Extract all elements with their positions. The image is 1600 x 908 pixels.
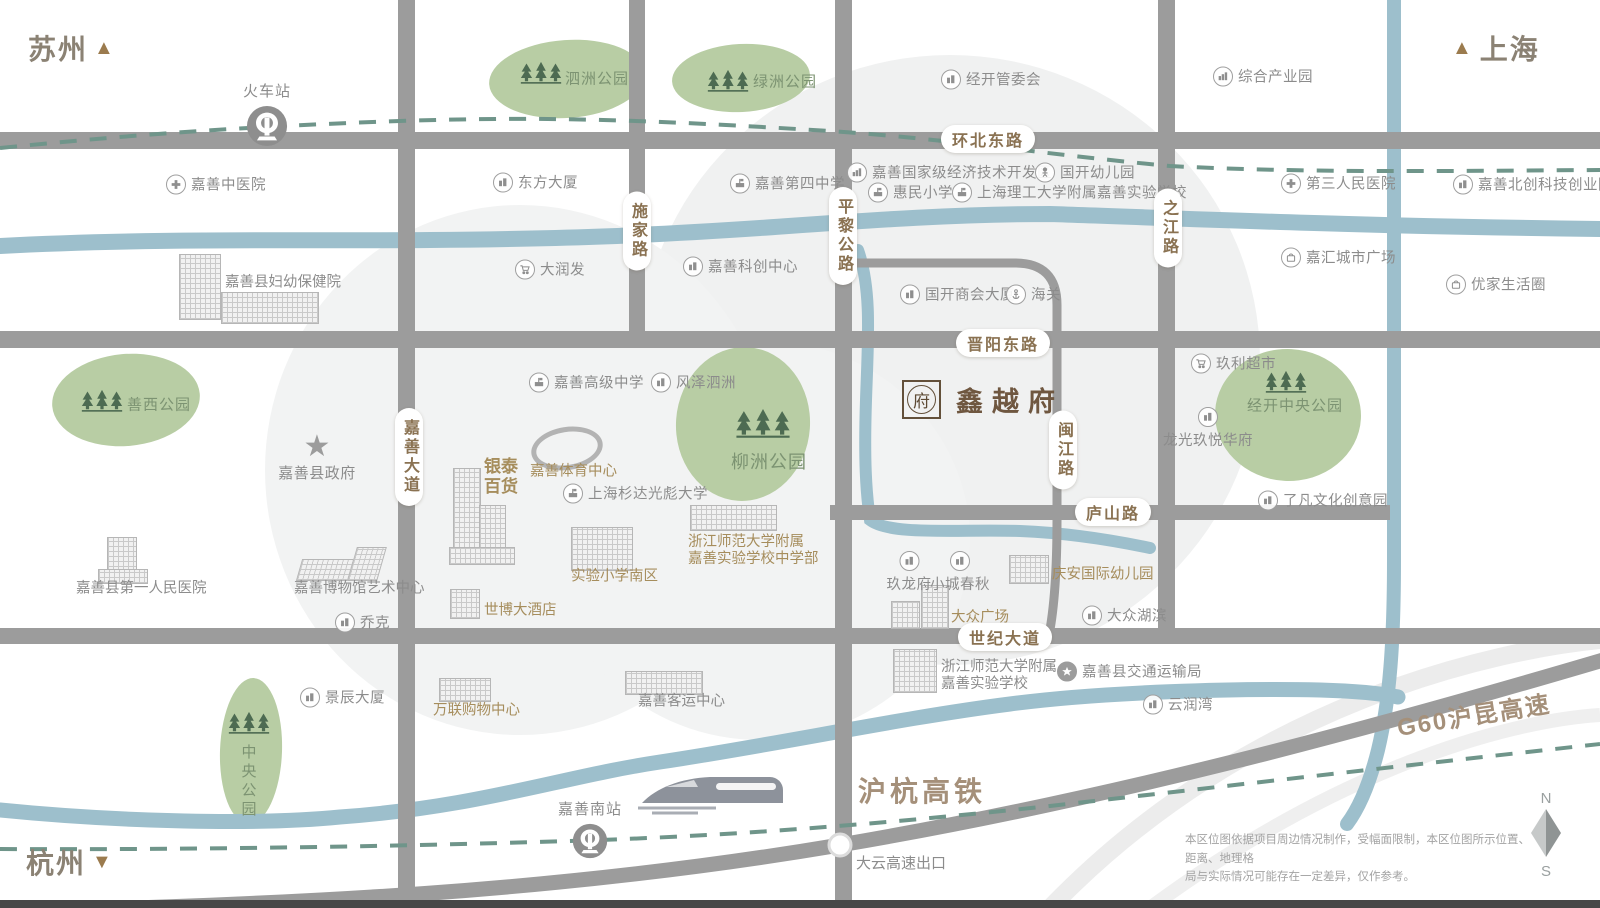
- poi-label: 了凡文化创意园: [1283, 490, 1388, 511]
- hospital-icon: [166, 174, 186, 194]
- map-poi: 嘉善科创中心: [683, 256, 798, 277]
- station-jiashan-south: 嘉善南站: [558, 798, 622, 864]
- road-label-pill: 之江路: [1154, 189, 1182, 268]
- trees-icon: [706, 70, 750, 94]
- building-sketch: [450, 589, 480, 619]
- poi-label: 上海杉达光彪大学: [588, 483, 708, 504]
- school-icon: [952, 182, 972, 202]
- map-poi: 大众湖滨: [1082, 605, 1167, 626]
- railway-emblem-icon: [246, 105, 288, 152]
- compass-north-label: N: [1541, 790, 1552, 807]
- park-label: 绿洲公园: [753, 71, 817, 92]
- map-poi: 嘉善县交通运输局: [1057, 661, 1202, 682]
- road-label-pill: 庐山路: [1075, 498, 1151, 526]
- south-triangle-icon: ▼: [92, 851, 114, 874]
- landmark-label: 世博大酒店: [484, 602, 557, 619]
- building-sketch: [690, 505, 777, 531]
- poi-label: 第三人民医院: [1306, 173, 1396, 194]
- map-poi: 优家生活圈: [1446, 274, 1546, 295]
- trees-icon: [80, 390, 124, 414]
- city-name: 苏州: [28, 28, 88, 68]
- landmark-label: 浙江师范大学附属嘉善实验学校: [941, 659, 1057, 693]
- building-sketch: [296, 559, 354, 581]
- map-poi: 大润发: [515, 259, 585, 280]
- seal-character: 府: [907, 385, 936, 414]
- building-icon: [899, 551, 919, 571]
- building-sketch: [625, 671, 703, 695]
- project-name: 鑫越府: [956, 380, 1064, 419]
- railway-emblem-icon: [572, 823, 608, 864]
- poi-label: 国开商会大厦: [925, 284, 1015, 305]
- station-huochezhan: 火车站: [243, 80, 291, 152]
- poi-label: 优家生活圈: [1471, 274, 1546, 295]
- building-icon: [335, 612, 355, 632]
- project-logo: 府 鑫越府: [902, 380, 1064, 419]
- map-poi: 东方大厦: [493, 172, 578, 193]
- station-label: 火车站: [243, 80, 291, 101]
- highway-exit-label: 大云高速出口: [856, 852, 946, 873]
- building-icon: [1258, 490, 1278, 510]
- park-label: 经开中央公园: [1247, 395, 1343, 416]
- road-label-pill: 世纪大道: [958, 623, 1052, 651]
- map-poi: 嘉汇城市广场: [1281, 247, 1396, 268]
- star-icon: [1057, 661, 1077, 681]
- school-icon: [529, 372, 549, 392]
- map-poi: 了凡文化创意园: [1258, 490, 1388, 511]
- poi-label: 嘉善第四中学: [755, 173, 845, 194]
- trees-icon: [519, 62, 563, 86]
- mall-icon: [1281, 247, 1301, 267]
- road-label-pill: 平黎公路: [829, 187, 857, 285]
- landmark-label: 实验小学南区: [571, 568, 658, 585]
- building-icon: [1082, 605, 1102, 625]
- train-illustration: [636, 763, 788, 822]
- map-poi: 云润湾: [1143, 694, 1213, 715]
- building-icon: [493, 172, 513, 192]
- poi-label: 嘉善中医院: [191, 174, 266, 195]
- cart-icon: [515, 259, 535, 279]
- building-sketch: [893, 649, 937, 693]
- road-label-pill: 闽江路: [1049, 411, 1077, 490]
- building-sketch: [571, 527, 633, 571]
- poi-label: 惠民小学: [893, 182, 953, 203]
- poi-government: ★ 嘉善县政府: [278, 432, 356, 483]
- park-label: 善西公园: [127, 394, 191, 415]
- building-icon: [900, 284, 920, 304]
- road-label-pill: 嘉善大道: [395, 408, 423, 506]
- building-sketch: [449, 547, 515, 565]
- hospital-icon: [1281, 173, 1301, 193]
- poi-label: 嘉汇城市广场: [1306, 247, 1396, 268]
- map-poi: 综合产业园: [1213, 66, 1313, 87]
- map-poi: 嘉善中医院: [166, 174, 266, 195]
- compass-diamond-icon: [1531, 809, 1561, 861]
- city-label-hangzhou: 杭州 ▼: [26, 842, 114, 882]
- landmark-label: 嘉善客运中心: [638, 693, 725, 710]
- map-poi: 嘉善北创科技创业园: [1453, 174, 1600, 195]
- landmark-label: 万联购物中心: [433, 702, 520, 719]
- map-poi: 上海杉达光彪大学: [563, 483, 708, 504]
- landmark-label: 嘉善博物馆艺术中心: [294, 580, 425, 597]
- poi-label: 嘉善北创科技创业园: [1478, 174, 1600, 195]
- landmark-label: 浙江师范大学附属嘉善实验学校中学部: [688, 534, 819, 568]
- building-sketch: [221, 292, 319, 324]
- city-name: 杭州: [26, 842, 86, 882]
- map-poi: 小城春秋: [930, 551, 990, 594]
- poi-label: 国开幼儿园: [1060, 162, 1135, 183]
- city-label-shanghai: ▲ 上海: [1452, 28, 1540, 68]
- poi-label: 乔克: [360, 612, 390, 633]
- poi-label: 嘉善县政府: [278, 462, 356, 483]
- poi-label: 龙光玖悦华府: [1163, 429, 1253, 450]
- building-icon: [683, 256, 703, 276]
- map-poi: 经开管委会: [941, 69, 1041, 90]
- park-label: 中央公园: [238, 744, 259, 820]
- cart-icon: [1191, 353, 1211, 373]
- map-poi: 风泽泗洲: [651, 372, 736, 393]
- map-poi: 龙光玖悦华府: [1163, 407, 1253, 450]
- building-icon: [1198, 407, 1218, 427]
- park-label: 泗洲公园: [565, 68, 629, 89]
- disclaimer-text: 本区位图依据项目周边情况制作，受幅面限制，本区位图所示位置、距离、地理格 局与实…: [1185, 831, 1530, 887]
- trees-icon: [734, 409, 792, 441]
- city-name: 上海: [1480, 28, 1540, 68]
- poi-label: 玖利超市: [1216, 353, 1276, 374]
- building-sketch: [439, 678, 491, 702]
- high-speed-rail-label: 沪杭高铁: [858, 770, 986, 810]
- highway-exit-node: [829, 834, 851, 856]
- poi-label: 嘉善国家级经济技术开发区: [872, 162, 1052, 183]
- poi-label: 海关: [1031, 284, 1061, 305]
- poi-label: 嘉善县交通运输局: [1082, 661, 1202, 682]
- map-poi: 景辰大厦: [300, 687, 385, 708]
- park-label: 柳洲公园: [731, 448, 807, 474]
- trees-icon: [1264, 371, 1308, 395]
- poi-label: 大众湖滨: [1107, 605, 1167, 626]
- mall-icon: [1446, 274, 1466, 294]
- school-icon: [868, 182, 888, 202]
- building-sketch: [891, 601, 920, 629]
- factory-icon: [847, 162, 867, 182]
- building-sketch: [1009, 555, 1049, 584]
- poi-label: 风泽泗洲: [676, 372, 736, 393]
- map-poi: 第三人民医院: [1281, 173, 1396, 194]
- map-poi: 嘉善高级中学: [529, 372, 644, 393]
- north-triangle-icon: ▲: [1452, 37, 1474, 60]
- disclaimer-line: 局与实际情况可能存在一定差异，仅作参考。: [1185, 868, 1530, 887]
- anchor-icon: [1006, 284, 1026, 304]
- map-poi: 国开商会大厦: [900, 284, 1015, 305]
- map-poi: 嘉善第四中学: [730, 173, 845, 194]
- building-icon: [1143, 694, 1163, 714]
- school-icon: [730, 173, 750, 193]
- poi-label: 嘉善高级中学: [554, 372, 644, 393]
- station-label: 嘉善南站: [558, 798, 622, 819]
- poi-label: 东方大厦: [518, 172, 578, 193]
- compass: N S: [1528, 790, 1564, 880]
- poi-label: 玖龙府: [887, 573, 932, 594]
- map-poi: 玖龙府: [887, 551, 932, 594]
- building-icon: [651, 372, 671, 392]
- road-label-pill: 晋阳东路: [956, 329, 1050, 357]
- building-icon: [941, 69, 961, 89]
- poi-label: 综合产业园: [1238, 66, 1313, 87]
- bottom-bar: [0, 900, 1600, 908]
- building-icon: [1453, 174, 1473, 194]
- building-icon: [950, 551, 970, 571]
- factory-icon: [1213, 66, 1233, 86]
- road-label-pill: 施家路: [623, 192, 651, 271]
- city-label-suzhou: 苏州 ▲: [28, 28, 116, 68]
- location-map: 苏州 ▲ ▲ 上海 杭州 ▼ 火车站 嘉善南站 府: [0, 0, 1600, 908]
- map-poi: 玖利超市: [1191, 353, 1276, 374]
- kid-icon: [1035, 162, 1055, 182]
- landmark-label: 嘉善县妇幼保健院: [225, 274, 341, 291]
- disclaimer-line: 本区位图依据项目周边情况制作，受幅面限制，本区位图所示位置、距离、地理格: [1185, 831, 1530, 868]
- landmark-label: 嘉善县第一人民医院: [76, 580, 207, 597]
- poi-label: 大润发: [540, 259, 585, 280]
- map-poi: 乔克: [335, 612, 390, 633]
- poi-label: 经开管委会: [966, 69, 1041, 90]
- building-icon: [300, 687, 320, 707]
- landmark-label: 嘉善体育中心: [530, 463, 617, 480]
- map-poi: 惠民小学: [868, 182, 953, 203]
- map-poi: 国开幼儿园: [1035, 162, 1135, 183]
- star-icon: ★: [304, 432, 331, 462]
- map-poi: 海关: [1006, 284, 1061, 305]
- poi-label: 云润湾: [1168, 694, 1213, 715]
- compass-south-label: S: [1541, 863, 1551, 880]
- map-poi: 嘉善国家级经济技术开发区: [847, 162, 1052, 183]
- poi-label: 嘉善科创中心: [708, 256, 798, 277]
- building-sketch: [179, 254, 221, 320]
- landmark-label: 银泰百货: [484, 457, 518, 497]
- road-label-pill: 环北东路: [941, 125, 1035, 153]
- poi-label: 小城春秋: [930, 573, 990, 594]
- map-poi: 上海理工大学附属嘉善实验学校: [952, 182, 1187, 203]
- north-triangle-icon: ▲: [94, 37, 116, 60]
- project-seal-icon: 府: [902, 380, 941, 419]
- poi-label: 景辰大厦: [325, 687, 385, 708]
- landmark-label: 庆安国际幼儿园: [1052, 566, 1154, 583]
- trees-icon: [227, 712, 271, 736]
- school-icon: [563, 483, 583, 503]
